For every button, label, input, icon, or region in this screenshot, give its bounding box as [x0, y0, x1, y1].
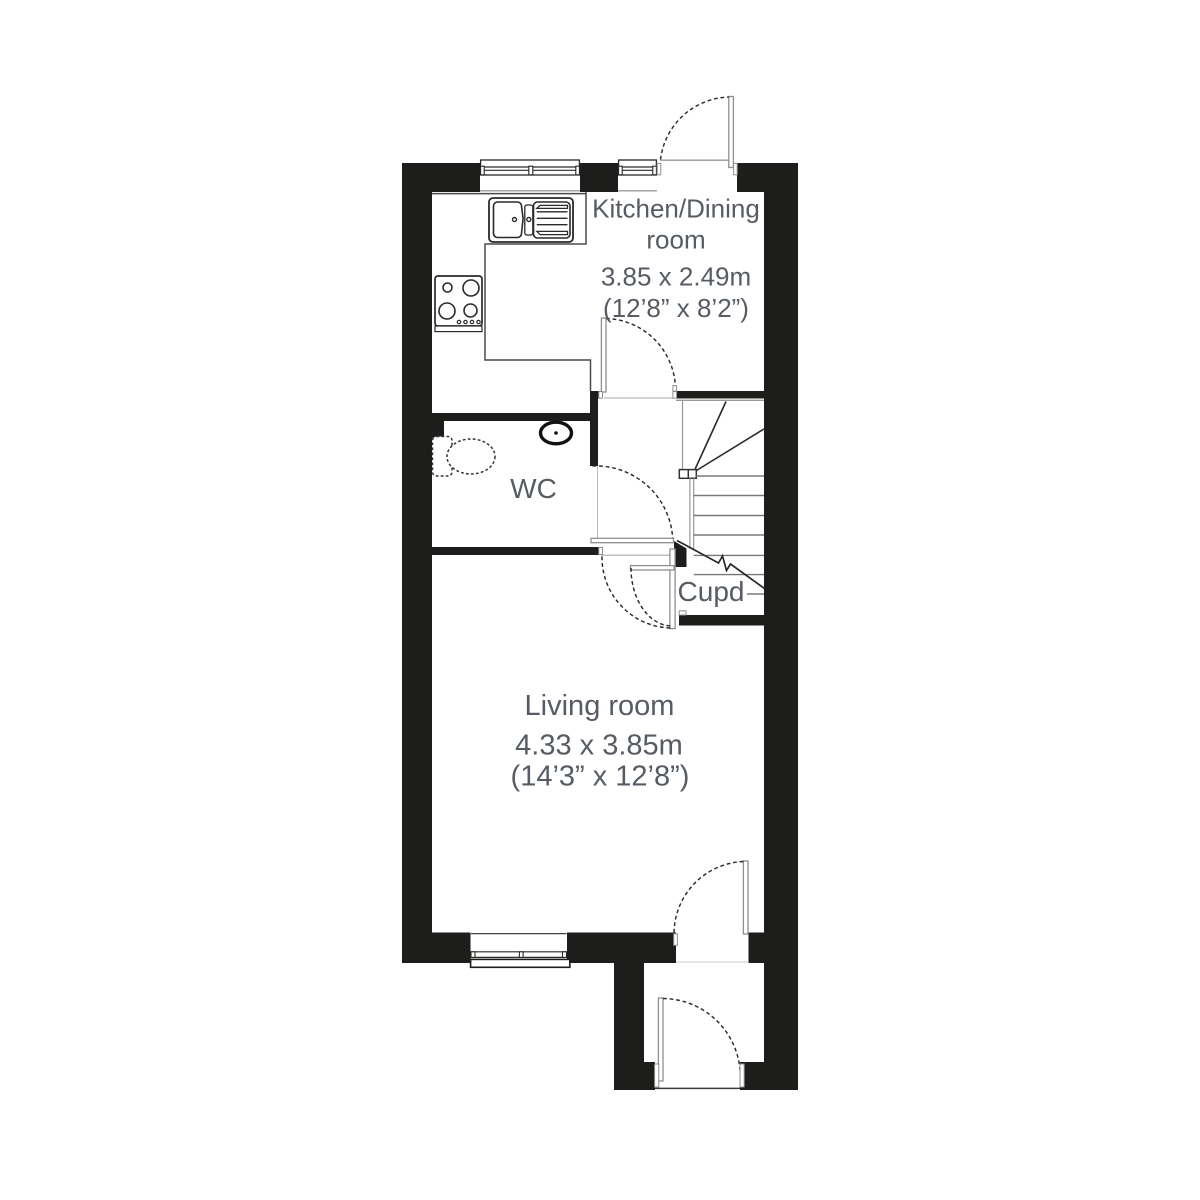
svg-text:WC: WC — [510, 473, 557, 504]
svg-text:4.33 x 3.85m: 4.33 x 3.85m — [515, 730, 683, 762]
svg-text:(14’3” x 12’8”): (14’3” x 12’8”) — [511, 761, 690, 793]
svg-text:room: room — [646, 225, 705, 255]
svg-text:(12’8” x 8’2”): (12’8” x 8’2”) — [603, 293, 749, 323]
svg-text:3.85 x 2.49m: 3.85 x 2.49m — [601, 262, 751, 292]
svg-text:Kitchen/Dining: Kitchen/Dining — [592, 194, 760, 224]
svg-text:Living room: Living room — [525, 690, 675, 722]
svg-text:Cupd: Cupd — [678, 576, 745, 607]
